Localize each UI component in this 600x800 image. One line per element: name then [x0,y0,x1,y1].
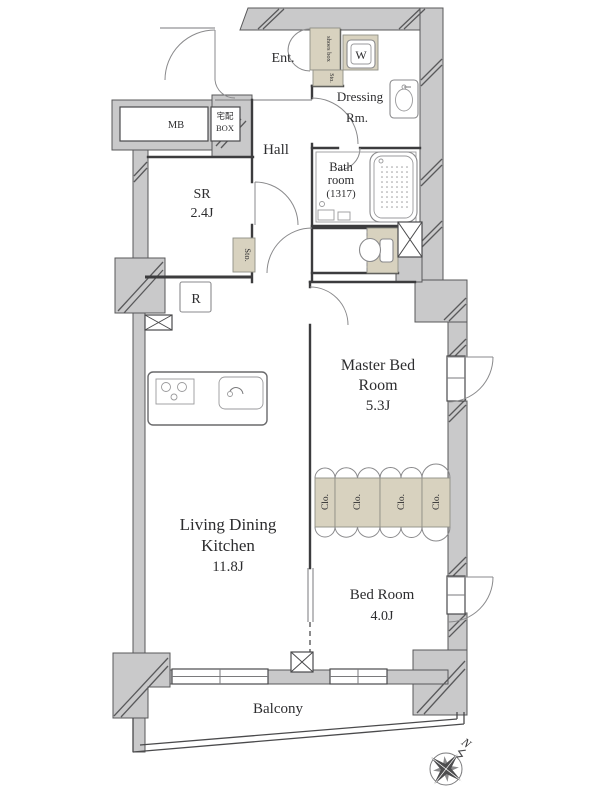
closet-label-4: Clo. [432,494,442,510]
bedroom-balcony-window [330,669,387,684]
balcony-label: Balcony [253,701,303,717]
refrigerator-space: R [180,282,211,312]
washer-area: W [343,35,378,70]
wall-right-mid [448,401,467,577]
ldk-balcony-window [172,669,268,684]
toilet-bowl [360,239,381,262]
delivery-box-label-1: 宅配 [216,111,234,121]
service-room-label-2: 2.4J [191,206,215,221]
meter-box-label: MB [168,120,184,131]
shoes-box [310,28,340,70]
wall-right-master-upper [448,322,467,357]
floor-plan-page: shoes box Sto. Sto. W [0,0,600,800]
bathroom-label-3: (1317) [326,188,356,200]
wall-balcony-left [133,718,145,752]
pillar-left [115,258,165,313]
floor-plan-drawing: shoes box Sto. Sto. W [0,0,600,800]
ldk-label-2: Kitchen [201,536,255,555]
service-room-storage-label: Sto. [243,248,253,261]
closet-label-1: Clo. [321,494,331,510]
shaft-box [291,652,313,672]
meter-delivery-boxes: MB 宅配 BOX [120,107,240,141]
master-bedroom-label-3: 5.3J [366,398,391,414]
vanity-sink [390,80,418,118]
wall-right-step [415,280,467,322]
bathroom-label-2: room [328,173,355,187]
refrigerator-label: R [191,292,201,307]
service-room-label-1: SR [193,187,211,202]
wall-top [240,8,443,30]
closet-label-2: Clo. [353,494,363,510]
bath-mat-texture [379,166,408,208]
entrance-storage-label: Sto. [328,73,334,83]
dressing-label-1: Dressing [337,89,384,104]
wall-below-shaft [396,257,422,282]
kitchen-counter [148,372,267,425]
washer-label: W [355,48,367,62]
toilet-tank [380,239,393,262]
bedroom-label-2: 4.0J [371,609,395,624]
ldk-label-1: Living Dining [180,515,277,534]
meter-box [120,107,208,141]
master-bedroom-label-1: Master Bed [341,357,415,374]
wall-right-bedroom-lower [448,613,467,650]
dressing-label-2: Rm. [346,110,368,125]
entrance-storage [313,70,343,86]
shaft-box [398,222,422,257]
toilet-fixture [360,239,394,263]
entrance-label: Ent. [272,51,295,66]
wall-left-ldk [133,313,145,653]
delivery-box-label-2: BOX [216,123,234,133]
counter-top [148,372,267,425]
master-bedroom-label-2: Room [358,377,398,394]
bedroom-label-1: Bed Room [350,587,415,603]
shaft-box [145,315,172,330]
wall-left-sr [133,150,148,260]
bathroom-label-1: Bath [329,160,353,174]
hall-label: Hall [263,142,289,158]
shoes-box-label: shoes box [325,36,332,63]
ldk-label-3: 11.8J [212,559,244,575]
vanity-counter [390,80,418,118]
closet-label-3: Clo. [397,494,407,510]
